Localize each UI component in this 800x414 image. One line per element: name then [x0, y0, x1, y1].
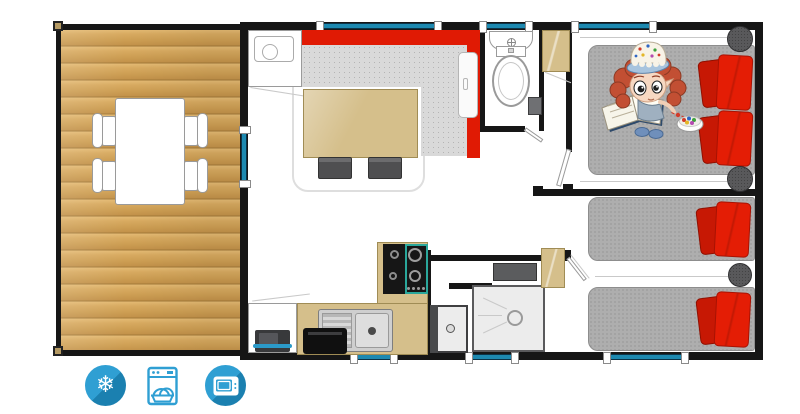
window-twin-bedroom	[605, 354, 687, 360]
tv-glyph	[213, 376, 239, 396]
terrace-wall-bottom	[56, 350, 245, 356]
terrace-wall-top	[56, 24, 245, 30]
pillow-main	[716, 110, 754, 167]
folding-side-table-handle	[463, 78, 468, 90]
footstool	[318, 157, 352, 179]
window-master-bedroom	[573, 23, 655, 29]
pillow	[698, 292, 750, 346]
dining-chair-seat	[102, 161, 116, 191]
hob-knob	[412, 287, 415, 290]
dining-chair-seat	[184, 161, 198, 191]
hob-knob	[422, 287, 425, 290]
burner-small	[390, 250, 399, 259]
bed-guide-line	[580, 181, 727, 182]
snowflake-icon: ❄	[85, 365, 126, 406]
dining-chair-seat	[184, 116, 198, 146]
candy-bowl	[672, 113, 704, 132]
toilet-seat	[498, 62, 524, 100]
terrace-corner-post	[53, 346, 63, 356]
footstool	[368, 157, 402, 179]
dining-chair-back	[197, 113, 208, 148]
cartoon-girl-reading	[590, 36, 710, 144]
oven-handle	[308, 332, 342, 335]
hob-knob	[417, 287, 420, 290]
sink-drain	[368, 327, 376, 335]
hob-knob	[407, 287, 410, 290]
burner-large	[408, 248, 422, 262]
microwave-shelf	[253, 344, 292, 348]
bed-guide-line	[595, 276, 728, 277]
bedside-stool	[727, 166, 753, 192]
pillow	[698, 202, 750, 256]
pillow-main	[714, 291, 752, 348]
washbasin-side-panel	[430, 305, 438, 353]
snowflake-glyph: ❄	[96, 374, 115, 397]
washbasin-tap	[446, 324, 455, 333]
wardrobe	[542, 30, 570, 72]
pillow-main	[714, 201, 752, 258]
bedside-stool	[728, 263, 752, 287]
wall-node	[563, 184, 573, 194]
hall-cabinet	[541, 248, 565, 288]
tv-icon	[205, 365, 246, 406]
wall-wc-bottom	[479, 126, 525, 132]
wall-left	[240, 22, 248, 360]
wc-wall-box	[528, 97, 542, 115]
shower-spray-line	[478, 315, 502, 316]
wall-node	[533, 186, 543, 196]
window-bathroom	[467, 354, 517, 360]
folding-side-table	[458, 52, 478, 118]
window-living-room	[318, 23, 440, 29]
master-bedroom-door-leaf	[556, 149, 571, 187]
storage-cabinet-burner	[262, 44, 278, 60]
sofa-back-top	[287, 30, 480, 45]
body	[635, 100, 674, 139]
shower-drain	[507, 310, 523, 326]
terrace-corner-post	[53, 21, 63, 31]
wall-right	[755, 22, 763, 360]
pillow-main	[716, 54, 754, 111]
bedside-stool	[727, 26, 753, 52]
entrance-sliding-door	[241, 128, 247, 186]
dining-chair-seat	[102, 116, 116, 146]
burner-small	[389, 272, 397, 280]
fridge-door-swing-line	[252, 293, 310, 301]
dining-table	[115, 98, 185, 205]
floor-plan: ❄	[0, 0, 800, 414]
toilet-flush-button	[508, 48, 514, 53]
coffee-table	[303, 89, 418, 158]
wall-shelf	[493, 263, 537, 281]
terrace-wall-left	[56, 24, 61, 356]
dishwasher-icon	[147, 366, 178, 406]
dining-chair-back	[197, 158, 208, 193]
window-wc	[481, 23, 531, 29]
burner-large	[409, 270, 421, 282]
